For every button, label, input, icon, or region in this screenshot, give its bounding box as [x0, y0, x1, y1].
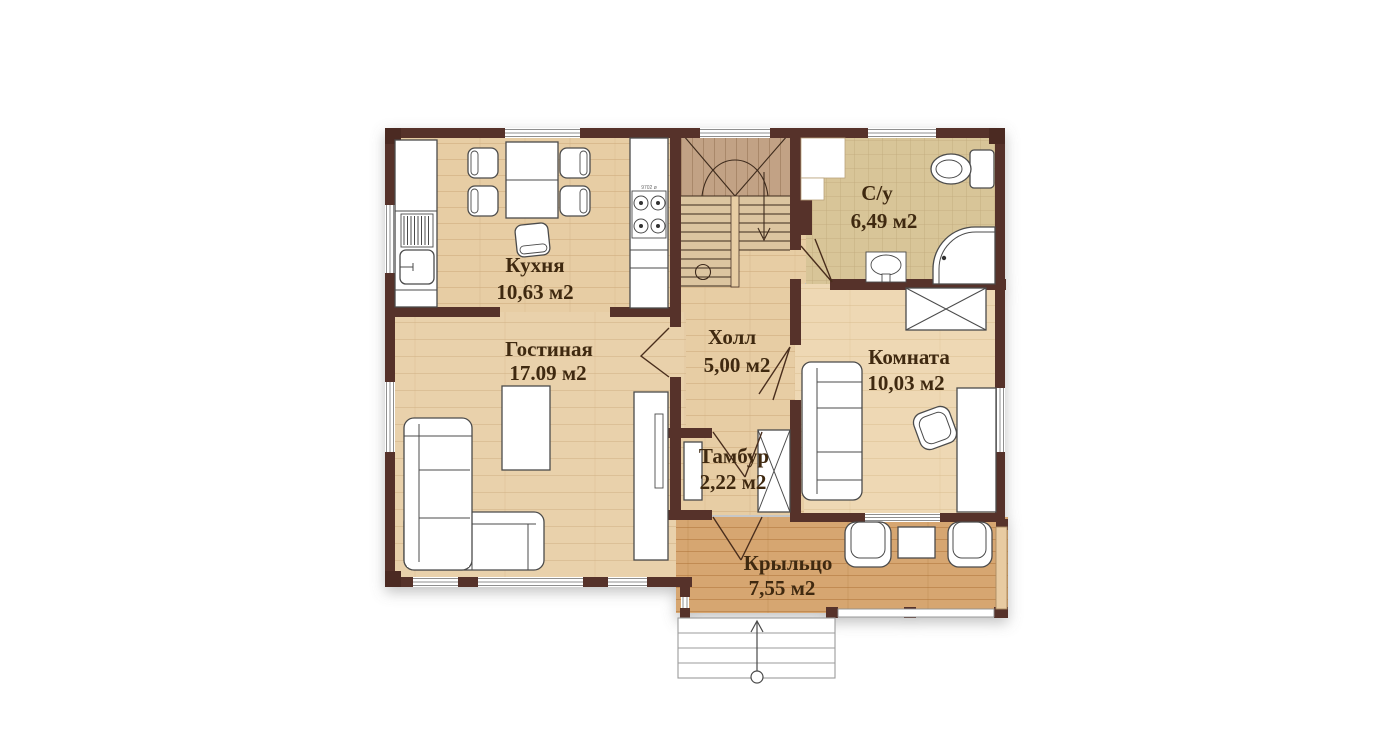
coffee-table: [502, 386, 550, 470]
window: [478, 577, 583, 587]
porch-railing-bottom: [838, 609, 994, 617]
washbasin: [866, 252, 906, 282]
chair: [560, 148, 590, 178]
porch-armchair: [948, 522, 992, 567]
bathroom-area: 6,49 м2: [851, 209, 918, 233]
kitchen-sink: [400, 250, 434, 284]
window: [608, 577, 647, 587]
stove: 9702 ø: [632, 185, 666, 238]
window: [385, 205, 395, 273]
porch-label: Крыльцо: [744, 551, 833, 575]
vestibule-label: Тамбур: [699, 444, 769, 468]
bathroom-label: С/у: [861, 181, 893, 205]
window: [413, 577, 458, 587]
sofa: [802, 362, 862, 500]
kitchen-label: Кухня: [505, 253, 564, 277]
chair: [468, 186, 498, 216]
living-label: Гостиная: [505, 337, 593, 361]
stair-landing: [681, 133, 790, 196]
hall-label: Холл: [708, 325, 757, 349]
window: [385, 382, 395, 452]
hall-area: 5,00 м2: [704, 353, 771, 377]
stove-marking: 9702 ø: [641, 185, 657, 191]
stair-stringer: [731, 196, 739, 287]
dish-drainer: [401, 214, 433, 247]
porch-table: [898, 527, 935, 558]
kitchen-area: 10,63 м2: [496, 280, 573, 304]
window: [865, 513, 940, 522]
tv-stand: [634, 392, 668, 560]
entrance-steps: [678, 618, 835, 683]
wardrobe: [906, 288, 986, 330]
window: [681, 597, 689, 608]
vestibule-area: 2,22 м2: [700, 470, 767, 494]
room-label: Комната: [868, 345, 950, 369]
floorplan-svg: 9702 ø: [0, 0, 1392, 752]
room-area: 10,03 м2: [867, 371, 944, 395]
bathroom-shelf: [801, 178, 824, 200]
chair: [468, 148, 498, 178]
porch-armchair: [845, 522, 891, 567]
living-area: 17.09 м2: [509, 361, 586, 385]
window: [700, 128, 770, 138]
bathroom-shelf: [801, 138, 845, 178]
porch-railing-right: [996, 527, 1007, 609]
porch-area: 7,55 м2: [749, 576, 816, 600]
chair: [560, 186, 590, 216]
floorplan-canvas: 9702 ø: [0, 0, 1392, 752]
window: [505, 128, 580, 138]
window: [868, 128, 936, 138]
desk: [957, 388, 996, 512]
